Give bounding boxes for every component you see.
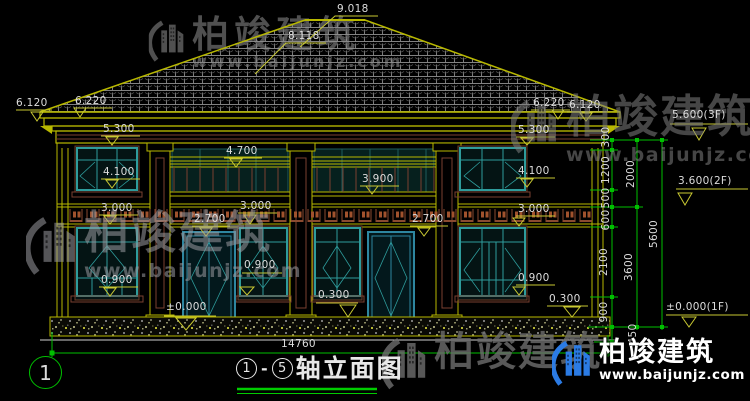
brand-logo: 柏竣建筑 www.baijunjz.com [552,333,745,389]
figure-title: 1 - 5 轴立面图 [236,356,404,381]
hip-roof [40,20,620,112]
axis-bubble-1: 1 [29,356,62,389]
axis-bubble-start: 1 [236,358,257,379]
brand-name: 柏竣建筑 [599,339,745,366]
axis-range-dash: - [261,359,268,378]
axis-bubble-1-label: 1 [39,361,52,385]
axis-bubble-end: 5 [272,358,293,379]
title-underline [237,389,377,394]
brand-url: www.baijunjz.com [599,369,745,383]
plinth [40,317,618,340]
brand-logo-icon [552,333,594,389]
cad-canvas: 柏竣建筑 www.baijunjz.com [0,0,750,401]
figure-title-text: 轴立面图 [296,356,404,381]
frieze-band [68,209,592,222]
